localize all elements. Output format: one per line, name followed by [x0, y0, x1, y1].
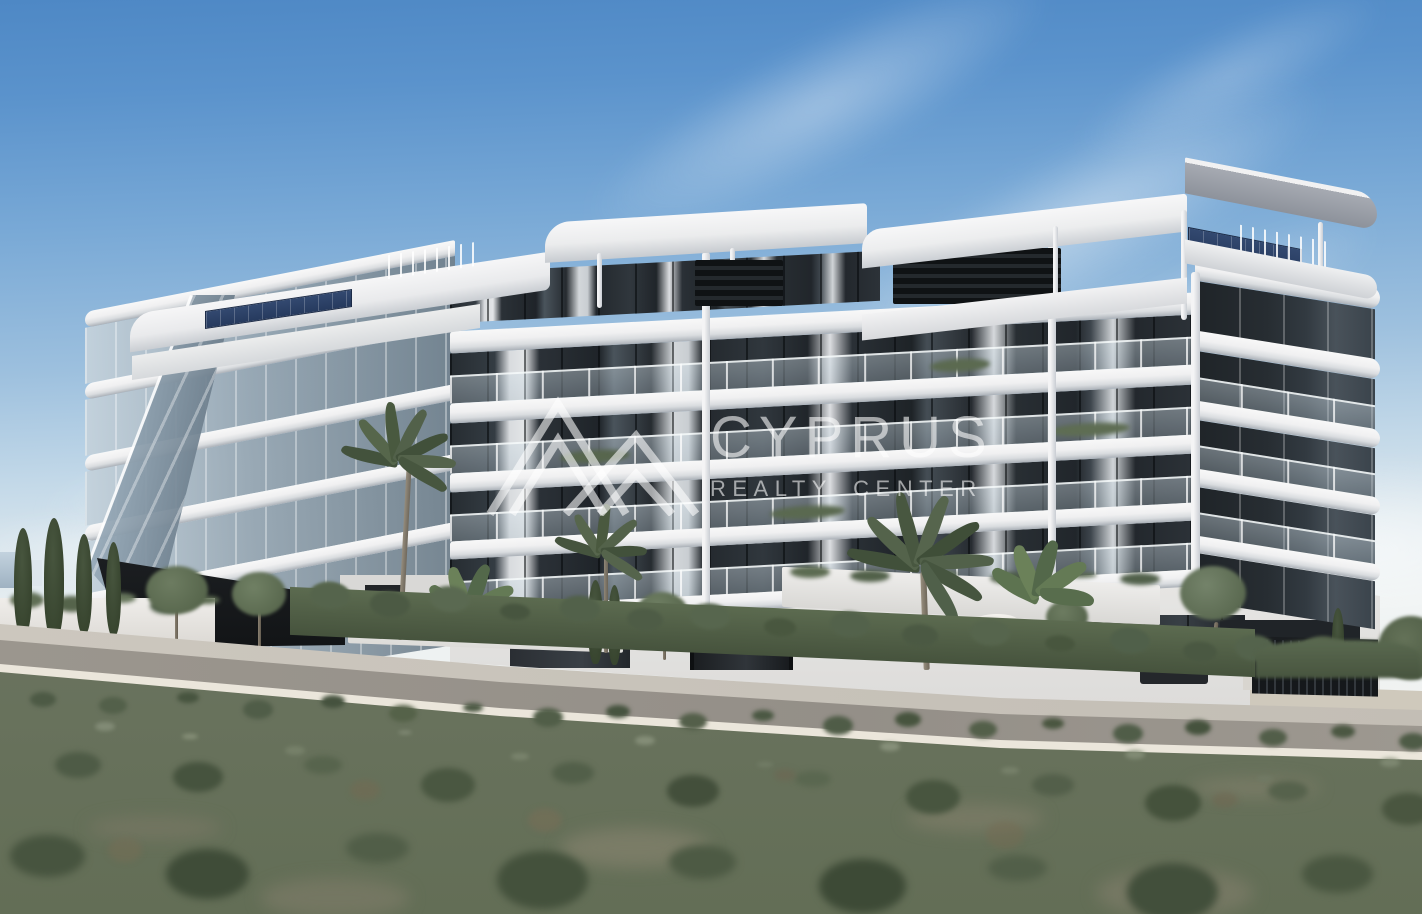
corner-column	[1191, 272, 1200, 612]
dirt-patches	[560, 828, 710, 868]
parapet-plants	[790, 566, 830, 578]
tree-trunk	[258, 612, 261, 650]
brand-text: CYPRUS REALTY CENTER	[710, 396, 994, 502]
olive-tree	[232, 572, 286, 616]
olive-tree	[146, 566, 208, 614]
pergola-column	[1053, 226, 1058, 300]
cypress-tree	[44, 518, 64, 640]
bush-cluster-far	[30, 692, 56, 707]
brand-name: CYPRUS	[710, 409, 994, 467]
olive-tree	[1180, 566, 1246, 620]
bush-cluster-near	[10, 835, 85, 877]
cypress-tree	[106, 542, 121, 636]
grass-tufts	[95, 722, 115, 731]
watermark: CYPRUS REALTY CENTER	[486, 396, 994, 516]
bush-cluster-mid	[55, 752, 101, 778]
architectural-render-scene: CYPRUS REALTY CENTER	[0, 0, 1422, 914]
rooftop-pergola	[695, 260, 783, 306]
cypress-tree	[76, 534, 92, 634]
cypress-tree	[14, 528, 32, 636]
brand-logo-icon	[486, 396, 700, 516]
brand-tagline: REALTY CENTER	[710, 476, 994, 502]
hedge	[1255, 640, 1420, 678]
dry-twigs	[350, 780, 380, 800]
pergola-column	[597, 253, 602, 308]
